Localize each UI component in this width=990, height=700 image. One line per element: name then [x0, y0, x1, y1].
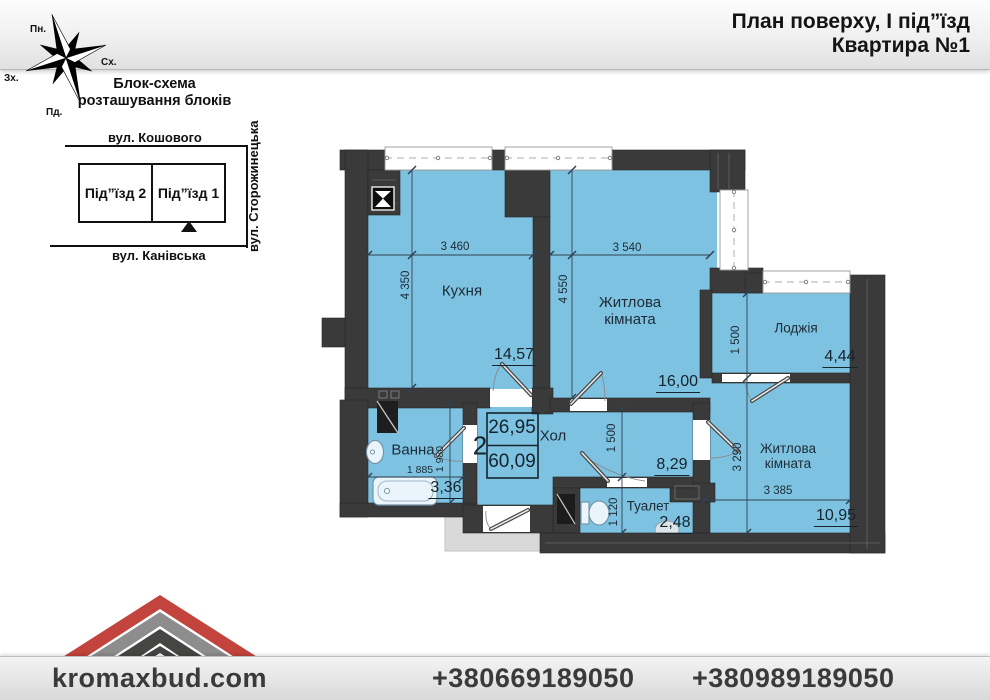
living1-area: 16,00 [656, 373, 700, 393]
block-schema-title: Блок-схема розташування блоків [62, 76, 247, 110]
page-title-line2: Квартира №1 [732, 34, 970, 58]
toilet-bowl [581, 501, 609, 525]
compass-east-label: Сх. [101, 57, 117, 68]
living2-name: Житлова кімната [750, 441, 826, 471]
website-label: kromaxbud.com [52, 663, 267, 694]
entrance-marker-icon [181, 221, 197, 232]
hall-height-dim: 1 500 [606, 424, 618, 453]
page-title: План поверху, І під”їзд Квартира №1 [732, 10, 970, 58]
stamp-living-area: 26,95 [488, 417, 536, 439]
entrance-2-cell: Під”їзд 2 [80, 165, 151, 221]
building-outline: Під”їзд 2 Під”їзд 1 [78, 163, 226, 223]
kitchen-area: 14,57 [492, 346, 536, 366]
living1-name: Житлова кімната [590, 294, 670, 328]
page-title-line1: План поверху, І під”їзд [732, 10, 970, 34]
living1-width-dim: 3 540 [613, 242, 642, 254]
living2-height-dim: 3 290 [732, 443, 744, 472]
toilet-area: 2,48 [657, 514, 692, 534]
vent-shaft-icon [372, 187, 394, 210]
floorplan-drawing [315, 145, 895, 565]
street-bottom-line [50, 245, 248, 247]
living2-area: 10,95 [814, 507, 858, 527]
street-top-label: вул. Кошового [108, 130, 202, 145]
hall-name: Хол [540, 428, 567, 445]
bathroom-height-dim: 1 980 [434, 446, 446, 472]
kitchen-window [385, 147, 492, 170]
kitchen-name: Кухня [442, 283, 482, 300]
living2-width-dim: 3 385 [764, 485, 793, 497]
block-schema-title-line1: Блок-схема [62, 76, 247, 93]
loggia-area: 4,44 [822, 348, 857, 368]
living1-height-dim: 4 550 [558, 275, 570, 304]
bathroom-width-dim: 1 885 [407, 464, 433, 476]
bathroom-name: Ванна [391, 442, 434, 459]
kitchen-width-dim: 3 460 [441, 241, 470, 253]
hall-area: 8,29 [654, 456, 689, 476]
living1-side-window [720, 190, 748, 270]
floorplan-page: План поверху, І під”їзд Квартира №1 Пн. … [0, 0, 990, 700]
compass-south-label: Пд. [46, 107, 62, 118]
loggia-window [763, 271, 850, 293]
phone-number-1: +380669189050 [432, 663, 634, 694]
kitchen-height-dim: 4 350 [400, 271, 412, 300]
stamp-room-count: 2 [473, 431, 487, 462]
street-top-line [65, 145, 248, 147]
bathroom-sink [367, 441, 384, 464]
entrance-1-cell: Під”їзд 1 [151, 165, 224, 221]
living1-window [505, 147, 612, 170]
block-schema-title-line2: розташування блоків [62, 93, 247, 110]
bathroom-area: 3,36 [428, 479, 463, 499]
compass-north-label: Пн. [30, 24, 46, 35]
toilet-height-dim: 1 120 [608, 498, 620, 527]
street-right-label: вул. Сторожинецька [246, 130, 261, 252]
phone-number-2: +380989189050 [692, 663, 894, 694]
toilet-name: Туалет [627, 499, 670, 514]
street-bottom-label: вул. Канівська [112, 248, 206, 263]
footer-band: kromaxbud.com +380669189050 +38098918905… [0, 656, 990, 700]
loggia-name: Лоджія [774, 321, 817, 336]
compass-west-label: Зх. [4, 73, 19, 84]
header-band: План поверху, І під”їзд Квартира №1 [0, 0, 990, 70]
stamp-total-area: 60,09 [488, 451, 536, 473]
bathtub [373, 477, 437, 505]
company-logo [50, 592, 270, 662]
loggia-height-dim: 1 500 [730, 326, 742, 355]
